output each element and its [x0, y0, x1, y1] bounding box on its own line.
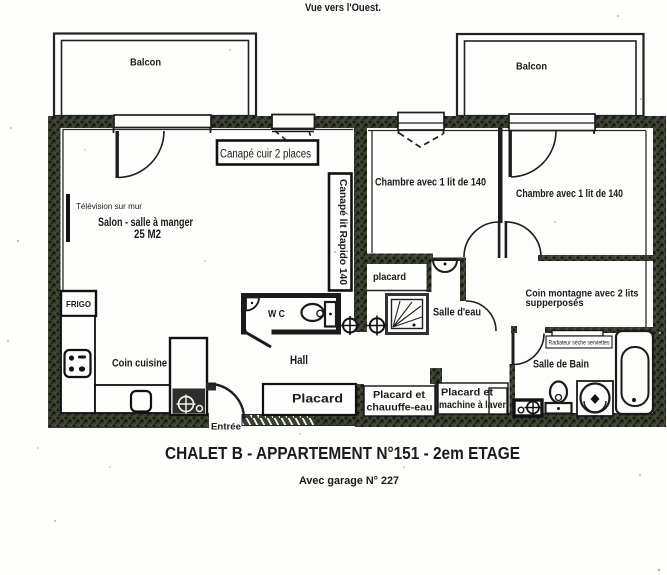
- svg-text:Télévision sur mur: Télévision sur mur: [76, 201, 142, 211]
- svg-text:CHALET B - APPARTEMENT N°151 -: CHALET B - APPARTEMENT N°151 - 2em ETAGE: [165, 443, 520, 463]
- svg-text:Salle de Bain: Salle de Bain: [533, 359, 589, 371]
- svg-text:Placard et: Placard et: [441, 387, 494, 399]
- svg-text:Salle d'eau: Salle d'eau: [433, 307, 481, 319]
- svg-text:Entrée: Entrée: [211, 422, 241, 433]
- svg-text:Balcon: Balcon: [130, 57, 161, 69]
- svg-text:Placard: Placard: [292, 394, 343, 406]
- svg-text:Vue vers l'Ouest.: Vue vers l'Ouest.: [305, 2, 381, 14]
- svg-text:Coin cuisine: Coin cuisine: [112, 358, 167, 370]
- svg-text:Canapé cuir 2 places: Canapé cuir 2 places: [220, 149, 311, 161]
- svg-text:Avec garage N° 227: Avec garage N° 227: [299, 475, 399, 487]
- svg-text:Chambre avec 1 lit de 140: Chambre avec 1 lit de 140: [375, 177, 486, 189]
- svg-text:Chambre avec 1 lit de 140: Chambre avec 1 lit de 140: [516, 188, 623, 200]
- svg-text:Radiateur sèche serviettes: Radiateur sèche serviettes: [549, 340, 610, 347]
- svg-text:Placard et: Placard et: [373, 389, 426, 401]
- svg-text:chauuffe-eau: chauuffe-eau: [367, 402, 433, 414]
- svg-text:Salon - salle à manger: Salon - salle à manger: [98, 217, 193, 229]
- svg-text:placard: placard: [373, 271, 406, 283]
- svg-text:machine à laver: machine à laver: [439, 399, 506, 411]
- svg-text:25 M2: 25 M2: [134, 229, 161, 241]
- svg-text:FRIGO: FRIGO: [66, 299, 91, 309]
- svg-text:W C: W C: [268, 309, 285, 320]
- svg-text:Balcon: Balcon: [516, 61, 547, 73]
- svg-text:Canapé lit Rapido 140: Canapé lit Rapido 140: [337, 179, 348, 285]
- svg-text:Hall: Hall: [290, 355, 308, 367]
- svg-text:supperposés: supperposés: [526, 297, 584, 309]
